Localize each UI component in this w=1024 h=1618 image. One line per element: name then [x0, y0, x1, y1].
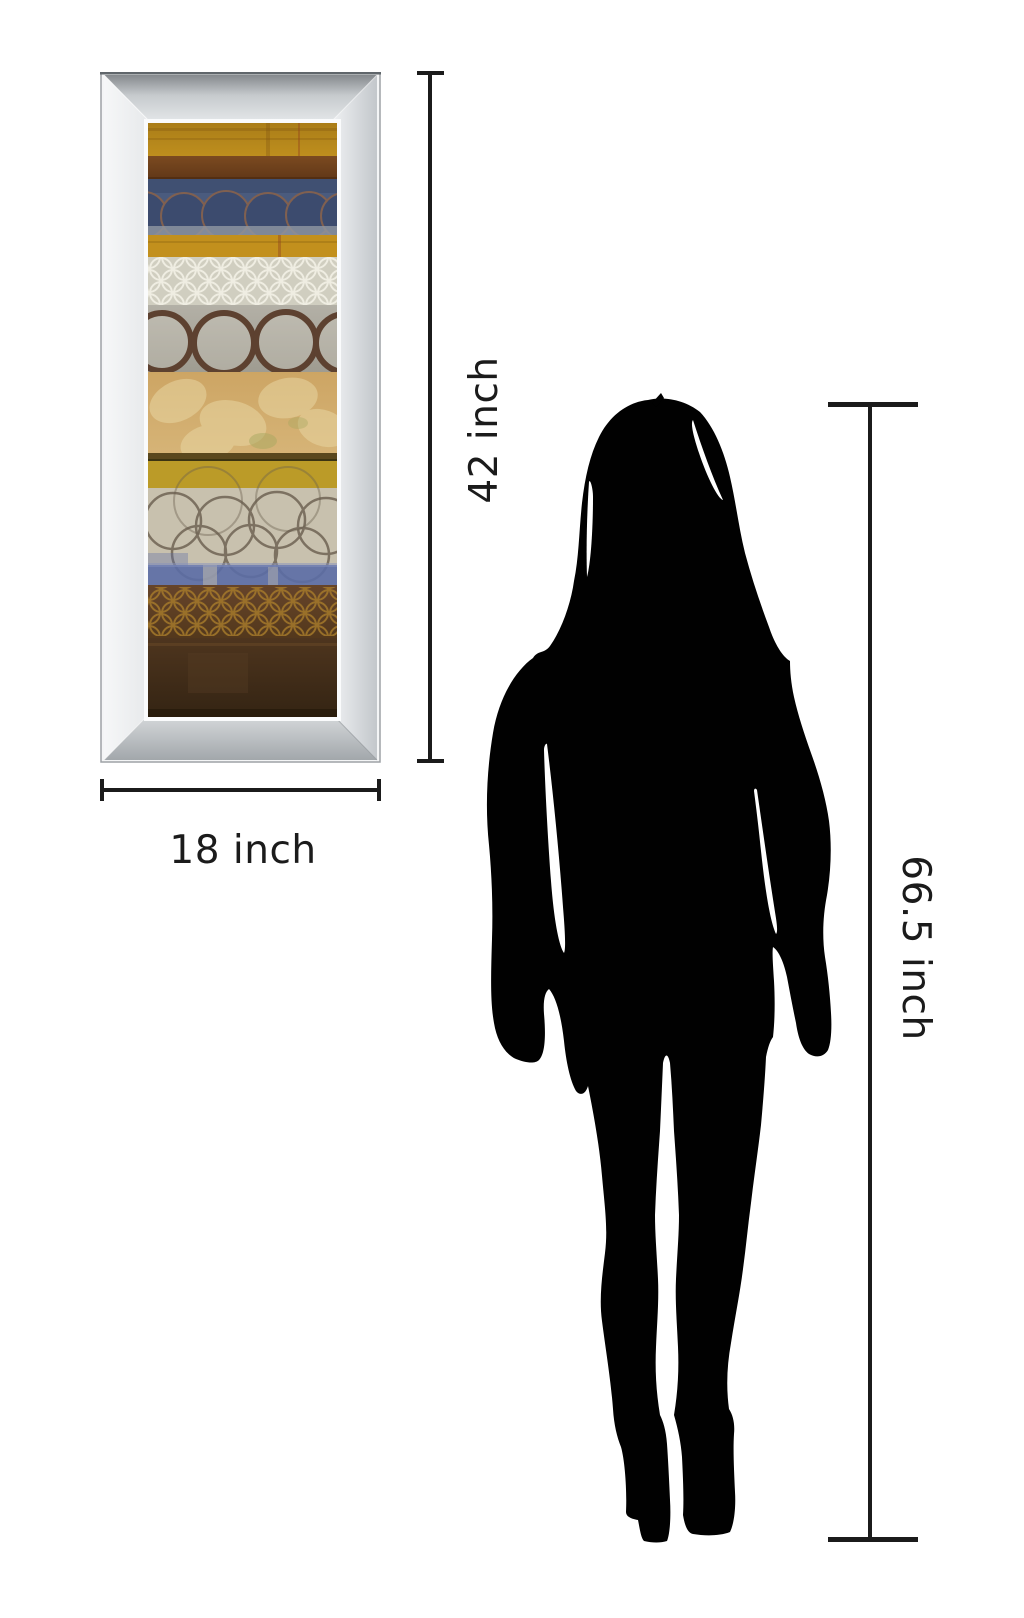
person-height-line-bottom-cap: [828, 1537, 918, 1542]
size-comparison-diagram: 42 inch 18 inch 66.5 inch: [0, 0, 1024, 1618]
person-height-line-top-cap: [828, 402, 918, 407]
person-height-line: [868, 404, 872, 1540]
person-height-label: 66.5 inch: [892, 828, 938, 1068]
